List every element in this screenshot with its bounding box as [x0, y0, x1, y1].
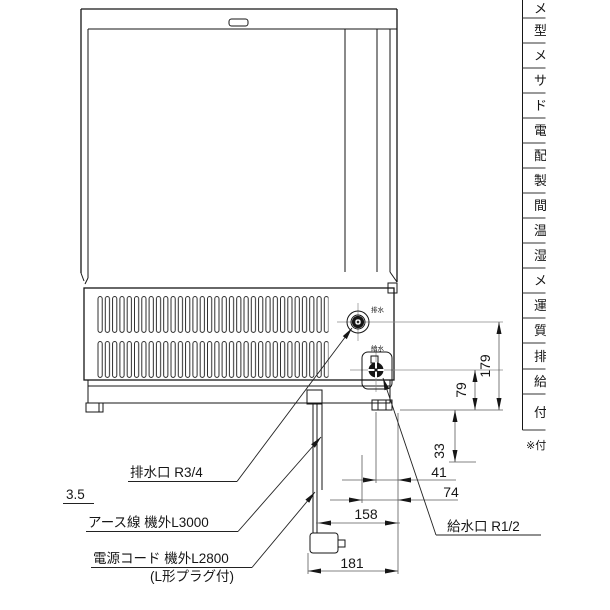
supply-fitting: [372, 400, 392, 410]
table-fragment: 配: [534, 148, 547, 163]
power-label: 電源コード 機外L2800: [93, 551, 229, 566]
cabinet-outline: [81, 9, 397, 293]
table-fragment: 運: [534, 298, 547, 313]
table-fragment: サ: [534, 73, 547, 88]
supply-label: 給水口 R1/2: [447, 519, 520, 534]
table-fragment: メ: [534, 48, 547, 63]
supply-mark: 給水: [371, 344, 385, 353]
clearance-label: 3.5: [66, 487, 85, 502]
table-fragment: 付: [534, 405, 547, 420]
top-slot: [229, 19, 248, 26]
drawing-canvas: 排水 給水 179 79: [0, 0, 610, 610]
table-fragment: 型: [534, 23, 547, 38]
dim-179: 179: [477, 354, 493, 378]
dim-33: 33: [431, 443, 447, 459]
vent-grille: [97, 296, 329, 378]
left-foot: [86, 403, 103, 412]
earth-label: アース線 機外L3000: [88, 515, 209, 530]
dim-79: 79: [453, 382, 469, 398]
dim-181: 181: [340, 555, 364, 571]
power-cord: [310, 404, 345, 553]
spec-table-sliver: メ 型 メ サ ド 電 配 製 間 温 湿 メ 運 質 排 給 付 ※付: [523, 0, 548, 452]
table-note: ※付: [526, 439, 546, 452]
plug: [310, 533, 338, 553]
technical-drawing: 排水 給水 179 79: [0, 0, 610, 610]
drain-port: [337, 303, 503, 341]
table-fragment: メ: [534, 273, 547, 288]
table-fragment: 温: [534, 223, 547, 238]
condenser-section: [84, 288, 394, 412]
dim-158: 158: [354, 506, 378, 522]
table-fragment: 湿: [534, 248, 547, 263]
drain-label: 排水口 R3/4: [130, 465, 203, 480]
drain-mark: 排水: [371, 305, 385, 314]
table-fragment: ド: [534, 98, 547, 113]
cord-bracket: [307, 390, 322, 404]
table-cell-fragments: メ 型 メ サ ド 電 配 製 間 温 湿 メ 運 質 排 給 付 ※付: [526, 1, 547, 452]
table-fragment: 給: [534, 374, 547, 389]
dimension-lines: 179 79 33 41 74 158 181: [308, 322, 503, 574]
power-note-label: (L形プラグ付): [150, 569, 234, 584]
plug-prong: [338, 540, 345, 547]
table-fragment: メ: [534, 1, 547, 16]
dim-41: 41: [431, 464, 447, 480]
table-fragment: 製: [534, 173, 547, 188]
table-fragment: 間: [534, 198, 547, 213]
table-fragment: 排: [534, 349, 547, 364]
table-fragment: 電: [534, 123, 547, 138]
table-fragment: 質: [534, 323, 547, 338]
dim-74: 74: [443, 484, 459, 500]
